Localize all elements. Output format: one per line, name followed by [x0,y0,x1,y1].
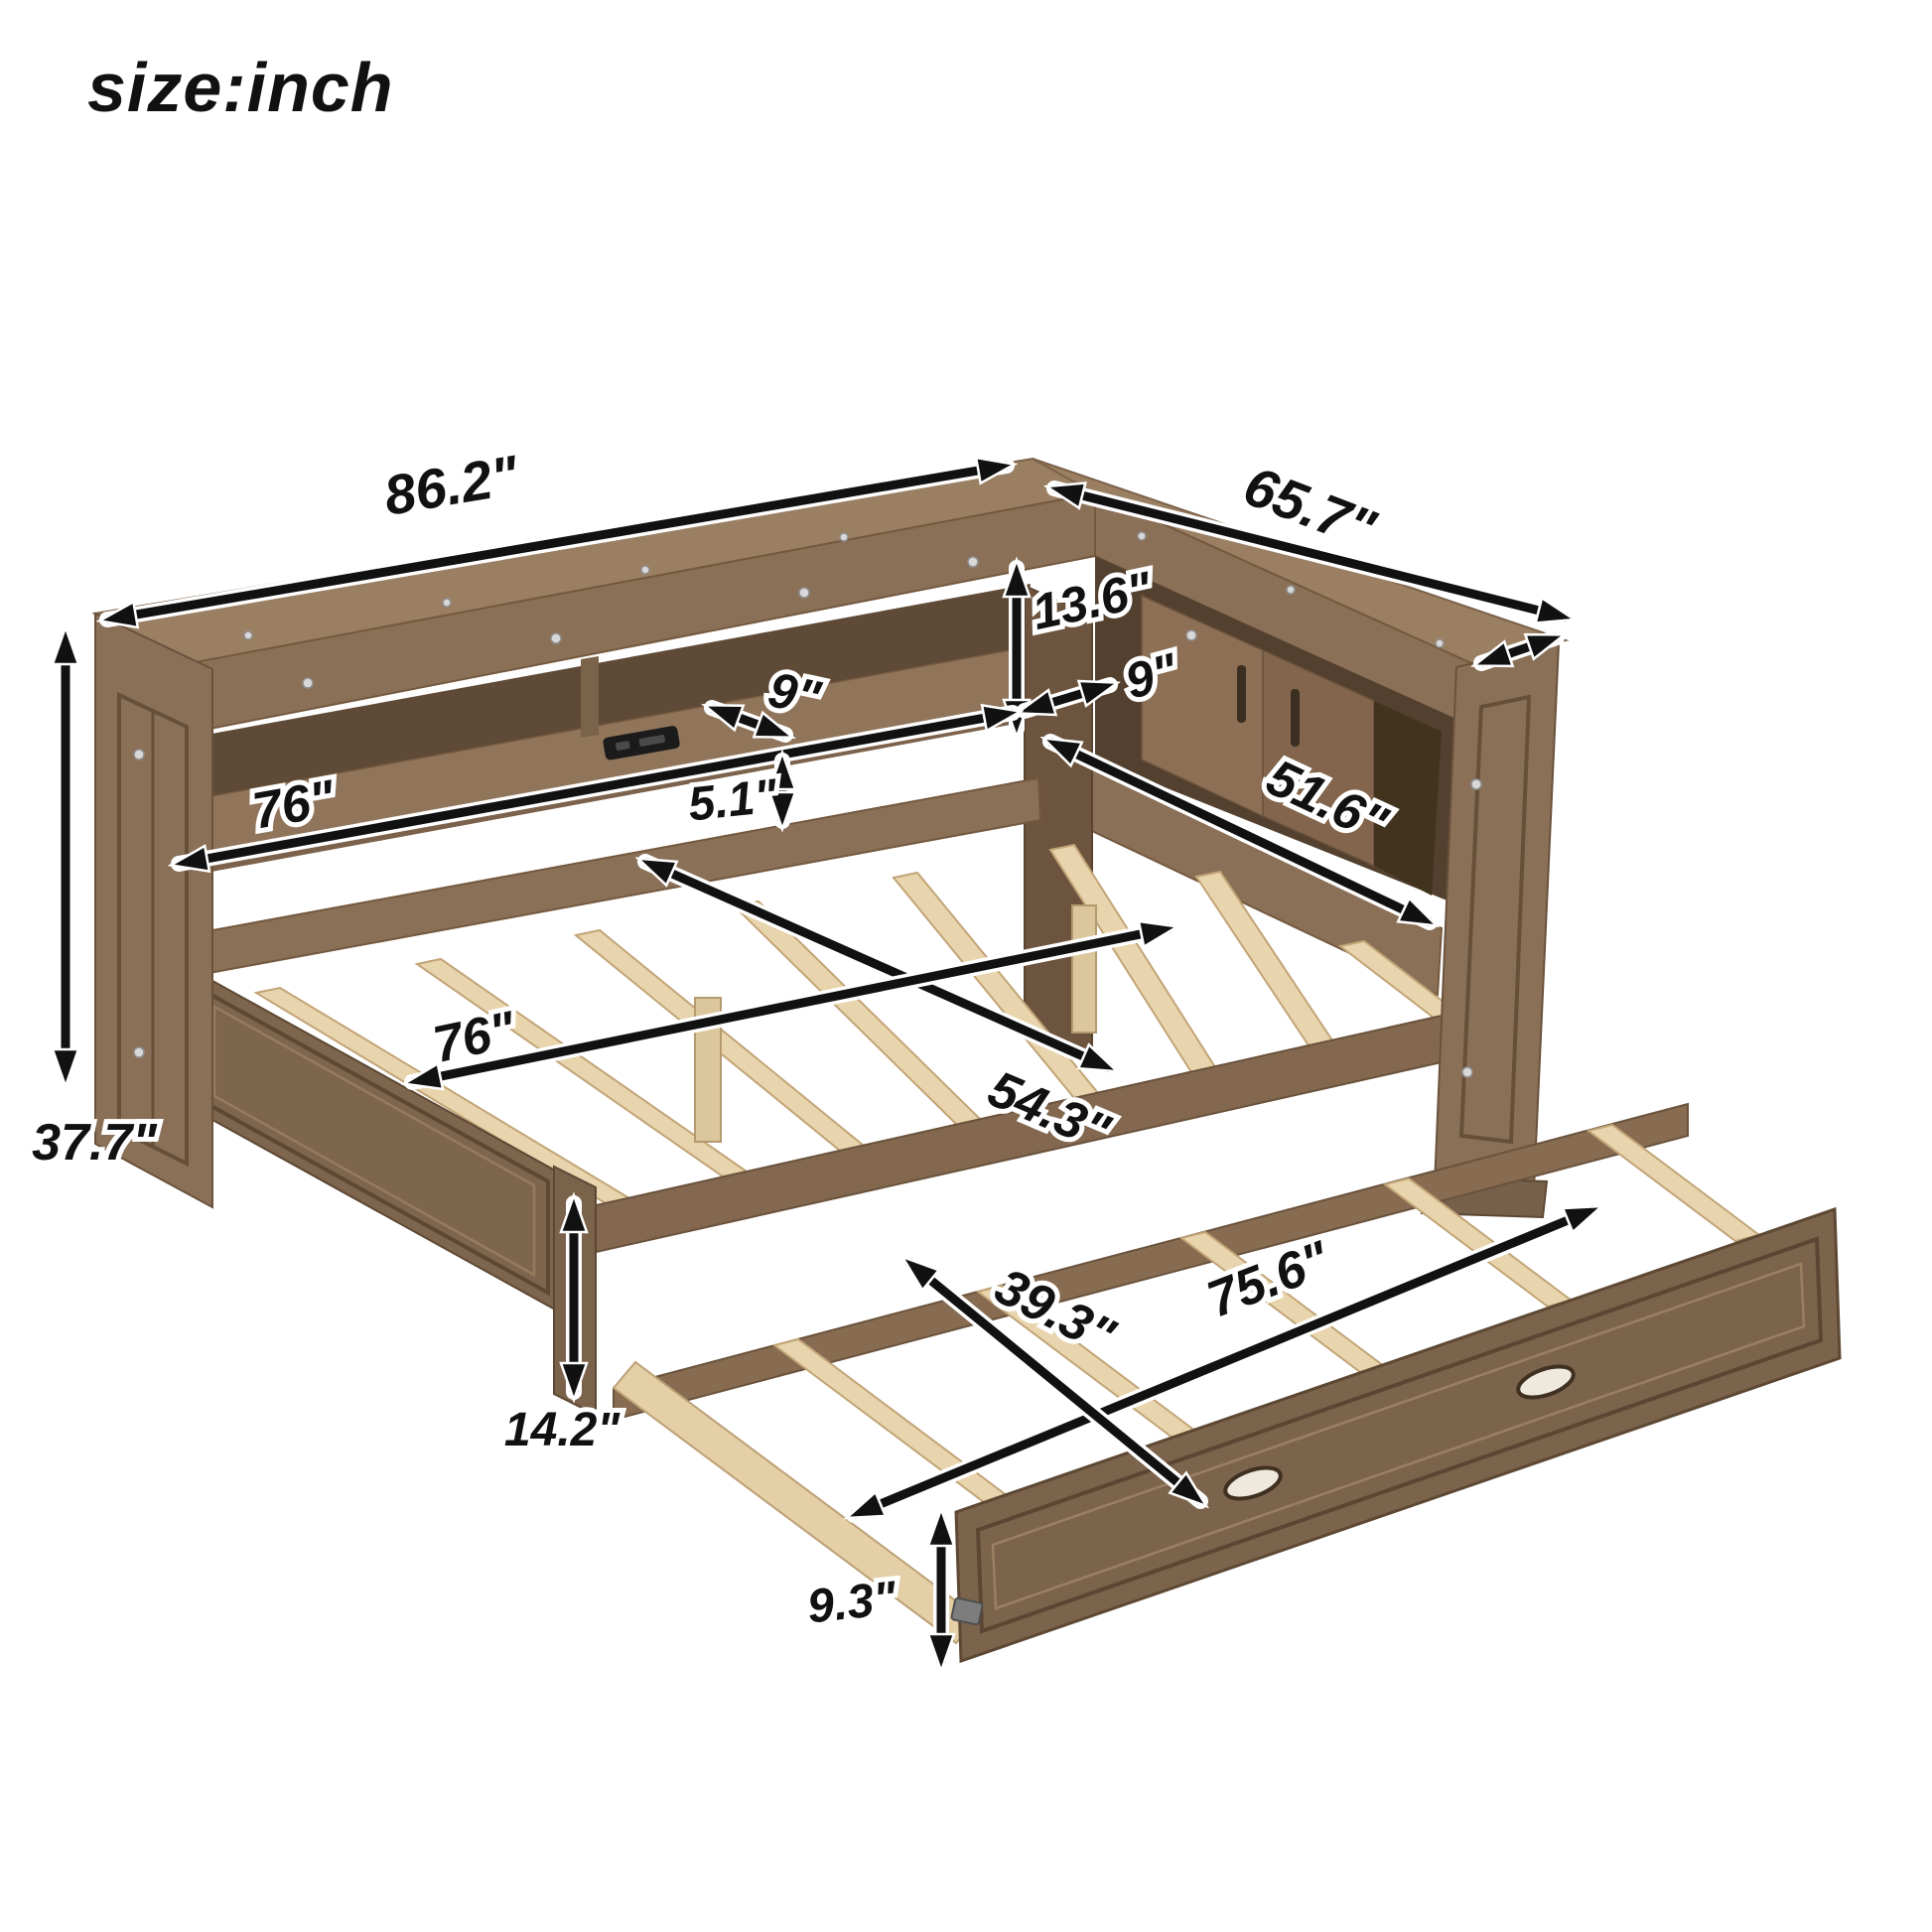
bed-dimension-diagram: 86.2" 65.7" 37.7" 13.6" 9" 9" 76" 5.1" 5… [0,0,1932,1932]
trundle-slat [774,1339,1008,1502]
nail-icon [1436,639,1444,647]
screw-icon [303,678,313,688]
trundle-side-rail [614,1362,978,1643]
door-handle-groove [1291,689,1300,747]
screw-icon [968,557,978,567]
diagram-canvas: size:inch [0,0,1932,1932]
screw-icon [799,588,809,598]
nail-icon [443,599,451,607]
nail-icon [244,631,252,639]
dim-shelf-gap-label: 5.1" [686,769,781,831]
nail-icon [1138,532,1146,540]
dim-overall-length-label: 86.2" [379,443,524,527]
right-pillar-face [1435,643,1559,1189]
trundle-slat [1588,1125,1759,1241]
screw-icon [551,633,561,643]
trundle-roller-bracket [951,1597,983,1624]
screw-icon [1462,1067,1472,1077]
dim-overall-height-label: 37.7" [32,1114,158,1172]
screw-icon [134,1047,144,1057]
dim-trundle-height-label: 9.3" [805,1572,900,1633]
center-support-leg [1072,905,1096,1033]
shelf-divider [581,656,599,738]
dim-frame-height-label: 14.2" [504,1404,621,1456]
screw-icon [1471,779,1481,789]
nail-icon [840,533,848,541]
door-handle-groove [1237,665,1246,723]
screw-icon [134,750,144,759]
nail-icon [1287,586,1295,594]
nail-icon [641,566,649,574]
screw-icon [1186,630,1196,640]
